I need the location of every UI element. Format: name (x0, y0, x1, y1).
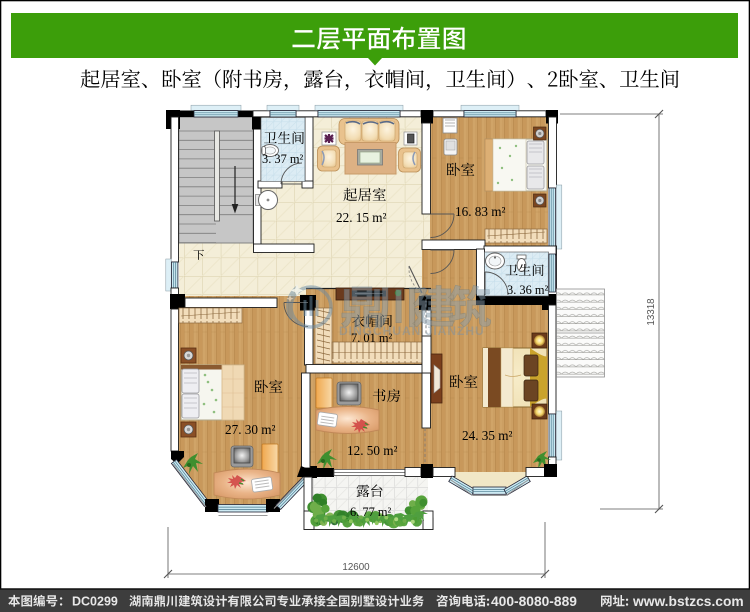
svg-text:3. 36 m²: 3. 36 m² (507, 283, 549, 297)
svg-text:6. 77 m²: 6. 77 m² (350, 505, 392, 519)
svg-text:400-8080-889: 400-8080-889 (491, 594, 577, 609)
svg-text:16. 83 m²: 16. 83 m² (455, 204, 506, 219)
svg-text:DC0299: DC0299 (72, 595, 118, 609)
svg-text:22. 15 m²: 22. 15 m² (336, 210, 387, 225)
svg-text:24. 35 m²: 24. 35 m² (462, 428, 513, 443)
svg-text:12600: 12600 (342, 562, 370, 573)
svg-text:13318: 13318 (646, 298, 657, 326)
svg-text:12. 50 m²: 12. 50 m² (347, 443, 398, 458)
svg-text:3. 37 m²: 3. 37 m² (262, 152, 304, 166)
svg-text:www.bstzcs.com: www.bstzcs.com (632, 594, 744, 609)
svg-text:DINGCHUAN JIANZHU: DINGCHUAN JIANZHU (339, 324, 485, 338)
svg-text:27. 30 m²: 27. 30 m² (225, 422, 276, 437)
